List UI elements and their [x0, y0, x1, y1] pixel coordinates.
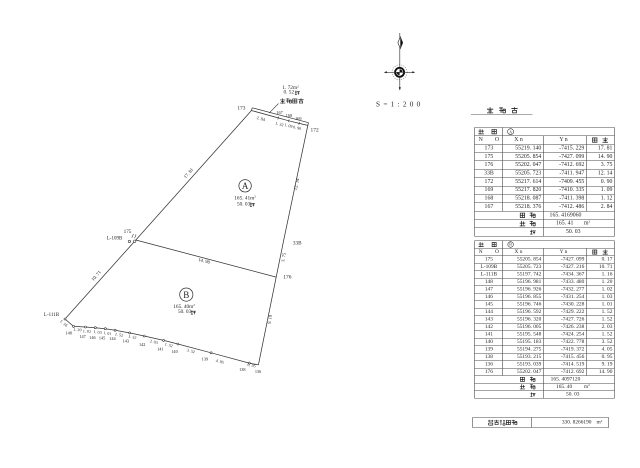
- svg-text:3. 75: 3. 75: [280, 252, 287, 263]
- svg-text:X n: X n: [515, 249, 523, 255]
- svg-text:1. 52: 1. 52: [164, 341, 173, 348]
- svg-text:12. 14: 12. 14: [294, 178, 301, 191]
- svg-text:168: 168: [485, 196, 494, 202]
- svg-text:2. 03: 2. 03: [602, 324, 613, 330]
- svg-text:55196. 746: 55196. 746: [517, 302, 542, 308]
- svg-text:165. 40: 165. 40: [556, 384, 572, 390]
- svg-text:B: B: [183, 290, 189, 300]
- svg-text:55217. 820: 55217. 820: [515, 187, 541, 193]
- svg-text:147: 147: [485, 287, 493, 293]
- svg-text:146: 146: [485, 294, 493, 300]
- svg-text:-7427. 099: -7427. 099: [559, 154, 584, 160]
- svg-text:N: N: [479, 137, 484, 143]
- svg-text:172: 172: [311, 127, 319, 133]
- svg-text:-7424. 254: -7424. 254: [561, 331, 585, 337]
- svg-text:55196. 981: 55196. 981: [517, 279, 542, 285]
- svg-text:330. 8266190: 330. 8266190: [562, 420, 592, 426]
- svg-text:-7412. 692: -7412. 692: [559, 162, 584, 168]
- svg-text:141: 141: [157, 347, 163, 352]
- svg-text:55205. 723: 55205. 723: [515, 171, 541, 177]
- svg-text:50. 03: 50. 03: [566, 391, 580, 397]
- svg-text:142: 142: [485, 324, 493, 330]
- svg-text:55205. 854: 55205. 854: [515, 154, 541, 160]
- svg-text:1. 52: 1. 52: [602, 309, 613, 315]
- svg-text:L-111B: L-111B: [44, 313, 60, 318]
- svg-text:-7412. 486: -7412. 486: [559, 204, 584, 210]
- svg-text:O: O: [495, 249, 499, 255]
- svg-text:-7419. 372: -7419. 372: [561, 346, 585, 352]
- svg-text:50. 03: 50. 03: [566, 229, 581, 235]
- svg-text:O: O: [495, 137, 499, 143]
- svg-text:55219. 140: 55219. 140: [515, 145, 541, 151]
- svg-text:0. 90: 0. 90: [293, 124, 302, 131]
- svg-text:176: 176: [485, 369, 493, 375]
- svg-text:50. 03: 50. 03: [178, 309, 192, 315]
- svg-text:1. 12: 1. 12: [601, 196, 613, 202]
- svg-text:55196. 005: 55196. 005: [517, 324, 542, 330]
- svg-text:169: 169: [295, 116, 301, 121]
- svg-text:-7411. 398: -7411. 398: [559, 196, 584, 202]
- svg-text:-7412. 692: -7412. 692: [561, 369, 585, 375]
- svg-text:1. 03: 1. 03: [602, 294, 613, 300]
- svg-text:-7433. 480: -7433. 480: [561, 279, 585, 285]
- svg-text:2. 84: 2. 84: [256, 115, 266, 122]
- svg-text:0. 17: 0. 17: [602, 257, 613, 263]
- svg-text:136: 136: [485, 361, 493, 367]
- svg-text:172: 172: [485, 179, 494, 185]
- svg-text:-7429. 222: -7429. 222: [561, 309, 585, 315]
- svg-text:147: 147: [79, 334, 86, 339]
- svg-text:3. 52: 3. 52: [186, 347, 195, 354]
- svg-text:1. 32: 1. 32: [275, 120, 284, 127]
- svg-text:140: 140: [171, 349, 177, 354]
- svg-text:169: 169: [485, 187, 494, 193]
- svg-text:-7409. 455: -7409. 455: [559, 179, 584, 185]
- svg-text:175: 175: [485, 154, 494, 160]
- svg-text:L-109B: L-109B: [107, 237, 123, 242]
- svg-text:136: 136: [255, 369, 262, 374]
- svg-text:1. 09: 1. 09: [284, 122, 293, 129]
- svg-text:165. 41: 165. 41: [556, 221, 573, 227]
- svg-text:55202. 047: 55202. 047: [515, 162, 541, 168]
- svg-text:176: 176: [485, 162, 494, 168]
- svg-text:55195. 183: 55195. 183: [517, 339, 542, 345]
- svg-text:146: 146: [89, 335, 96, 340]
- svg-text:-7422. 778: -7422. 778: [561, 339, 585, 345]
- svg-text:165. 41m2: 165. 41m2: [234, 195, 256, 202]
- svg-text:1. 01: 1. 01: [602, 302, 613, 308]
- svg-text:50. 03: 50. 03: [237, 201, 251, 207]
- svg-text:4. 05: 4. 05: [602, 346, 613, 352]
- svg-text:1. 52: 1. 52: [128, 334, 137, 341]
- svg-text:1. 52: 1. 52: [602, 331, 613, 337]
- svg-text:-7415. 229: -7415. 229: [559, 145, 584, 151]
- svg-text:-7427. 216: -7427. 216: [561, 264, 585, 270]
- svg-text:140: 140: [485, 339, 493, 345]
- svg-text:139: 139: [485, 346, 493, 352]
- svg-text:9. 19: 9. 19: [267, 314, 274, 325]
- svg-text:-7426. 238: -7426. 238: [561, 324, 585, 330]
- svg-text:139: 139: [202, 357, 208, 362]
- svg-text:55197. 742: 55197. 742: [517, 272, 542, 278]
- svg-text:L-111B: L-111B: [481, 272, 498, 278]
- svg-text:144: 144: [485, 309, 493, 315]
- svg-text:14. 90: 14. 90: [598, 154, 613, 160]
- svg-text:-7410. 335: -7410. 335: [559, 187, 584, 193]
- svg-text:-7414. 519: -7414. 519: [561, 361, 585, 367]
- svg-text:55205. 854: 55205. 854: [517, 257, 542, 263]
- svg-text:10. 71: 10. 71: [91, 270, 103, 283]
- svg-text:145: 145: [485, 302, 493, 308]
- svg-text:3. 52: 3. 52: [602, 339, 613, 345]
- svg-text:1. 20: 1. 20: [73, 327, 81, 332]
- svg-text:1. 52: 1. 52: [115, 331, 124, 337]
- svg-text:X n: X n: [514, 137, 523, 143]
- svg-text:1. 20: 1. 20: [602, 279, 613, 285]
- svg-text:55193. 215: 55193. 215: [517, 354, 542, 360]
- svg-text:167: 167: [485, 204, 494, 210]
- svg-text:Y n: Y n: [559, 137, 567, 143]
- svg-text:17. 81: 17. 81: [183, 167, 195, 180]
- svg-text:143: 143: [485, 316, 493, 322]
- svg-text:14. 90: 14. 90: [599, 369, 613, 375]
- svg-text:55194. 275: 55194. 275: [517, 346, 542, 352]
- svg-text:138: 138: [239, 367, 245, 372]
- svg-text:1. 02: 1. 02: [602, 287, 613, 293]
- svg-text:55217. 614: 55217. 614: [515, 179, 541, 185]
- svg-text:144: 144: [109, 336, 116, 341]
- svg-text:-7427. 726: -7427. 726: [561, 316, 585, 322]
- svg-text:Y n: Y n: [560, 249, 568, 255]
- svg-text:165. 4097120: 165. 4097120: [551, 376, 581, 382]
- svg-text:0. 52: 0. 52: [284, 90, 295, 96]
- svg-text:168: 168: [286, 113, 292, 118]
- svg-text:165. 4169060: 165. 4169060: [550, 212, 582, 218]
- svg-text:142: 142: [139, 342, 145, 347]
- svg-text:138: 138: [485, 354, 493, 360]
- svg-text:N: N: [479, 249, 483, 255]
- svg-text:1. 02: 1. 02: [83, 328, 92, 334]
- svg-text:175: 175: [485, 257, 493, 263]
- svg-text:12. 14: 12. 14: [598, 171, 613, 177]
- svg-text:55196. 926: 55196. 926: [517, 287, 542, 293]
- svg-text:167: 167: [276, 110, 283, 115]
- svg-text:0. 95: 0. 95: [247, 362, 256, 368]
- svg-text:0. 95: 0. 95: [602, 354, 613, 360]
- svg-text:3. 75: 3. 75: [601, 162, 613, 168]
- svg-text:55205. 723: 55205. 723: [517, 264, 542, 270]
- svg-text:-7434. 367: -7434. 367: [561, 272, 585, 278]
- svg-text:17. 81: 17. 81: [598, 145, 613, 151]
- svg-text:B: B: [509, 243, 512, 247]
- svg-text:0. 90: 0. 90: [601, 179, 613, 185]
- svg-text:33B: 33B: [484, 171, 494, 177]
- svg-text:1. 03: 1. 03: [93, 329, 102, 335]
- svg-text:9. 19: 9. 19: [602, 361, 613, 367]
- svg-text:55195. 548: 55195. 548: [517, 331, 542, 337]
- svg-text:55218. 376: 55218. 376: [515, 204, 541, 210]
- svg-text:m2: m2: [584, 220, 591, 227]
- svg-text:141: 141: [485, 331, 493, 337]
- svg-text:-7427. 099: -7427. 099: [561, 257, 585, 263]
- svg-text:10. 71: 10. 71: [599, 264, 613, 270]
- svg-text:1. 16: 1. 16: [602, 272, 613, 278]
- svg-text:148: 148: [65, 331, 71, 336]
- svg-text:2. 84: 2. 84: [601, 204, 613, 210]
- svg-text:173: 173: [485, 145, 494, 151]
- svg-text:L-109B: L-109B: [481, 264, 498, 270]
- svg-text:55202. 047: 55202. 047: [517, 369, 542, 375]
- svg-text:S=1:200: S=1:200: [376, 101, 424, 109]
- svg-text:145: 145: [99, 336, 105, 341]
- svg-text:A: A: [242, 181, 249, 191]
- svg-text:4. 05: 4. 05: [215, 358, 224, 365]
- svg-text:-7432. 277: -7432. 277: [561, 287, 585, 293]
- svg-text:m2: m2: [584, 383, 590, 390]
- svg-text:175: 175: [124, 229, 132, 235]
- svg-text:176: 176: [283, 275, 291, 281]
- svg-text:55196. 592: 55196. 592: [517, 309, 542, 315]
- svg-text:55218. 087: 55218. 087: [515, 196, 541, 202]
- svg-text:1. 16: 1. 16: [59, 318, 69, 328]
- svg-text:-7415. 456: -7415. 456: [561, 354, 585, 360]
- svg-text:2. 03: 2. 03: [149, 338, 158, 345]
- svg-text:1. 52: 1. 52: [602, 316, 613, 322]
- svg-text:A: A: [509, 129, 512, 134]
- svg-text:1. 09: 1. 09: [601, 187, 613, 193]
- svg-text:-7431. 254: -7431. 254: [561, 294, 585, 300]
- svg-text:-7411. 947: -7411. 947: [559, 171, 584, 177]
- svg-text:55196. 855: 55196. 855: [517, 294, 542, 300]
- svg-text:-7430. 228: -7430. 228: [561, 302, 585, 308]
- svg-text:m2: m2: [597, 419, 603, 426]
- svg-text:143: 143: [123, 338, 129, 343]
- svg-text:148: 148: [485, 279, 493, 285]
- svg-text:33B: 33B: [293, 240, 302, 246]
- svg-text:55196. 320: 55196. 320: [517, 316, 542, 322]
- svg-text:55193. 039: 55193. 039: [517, 361, 542, 367]
- svg-text:173: 173: [237, 106, 245, 112]
